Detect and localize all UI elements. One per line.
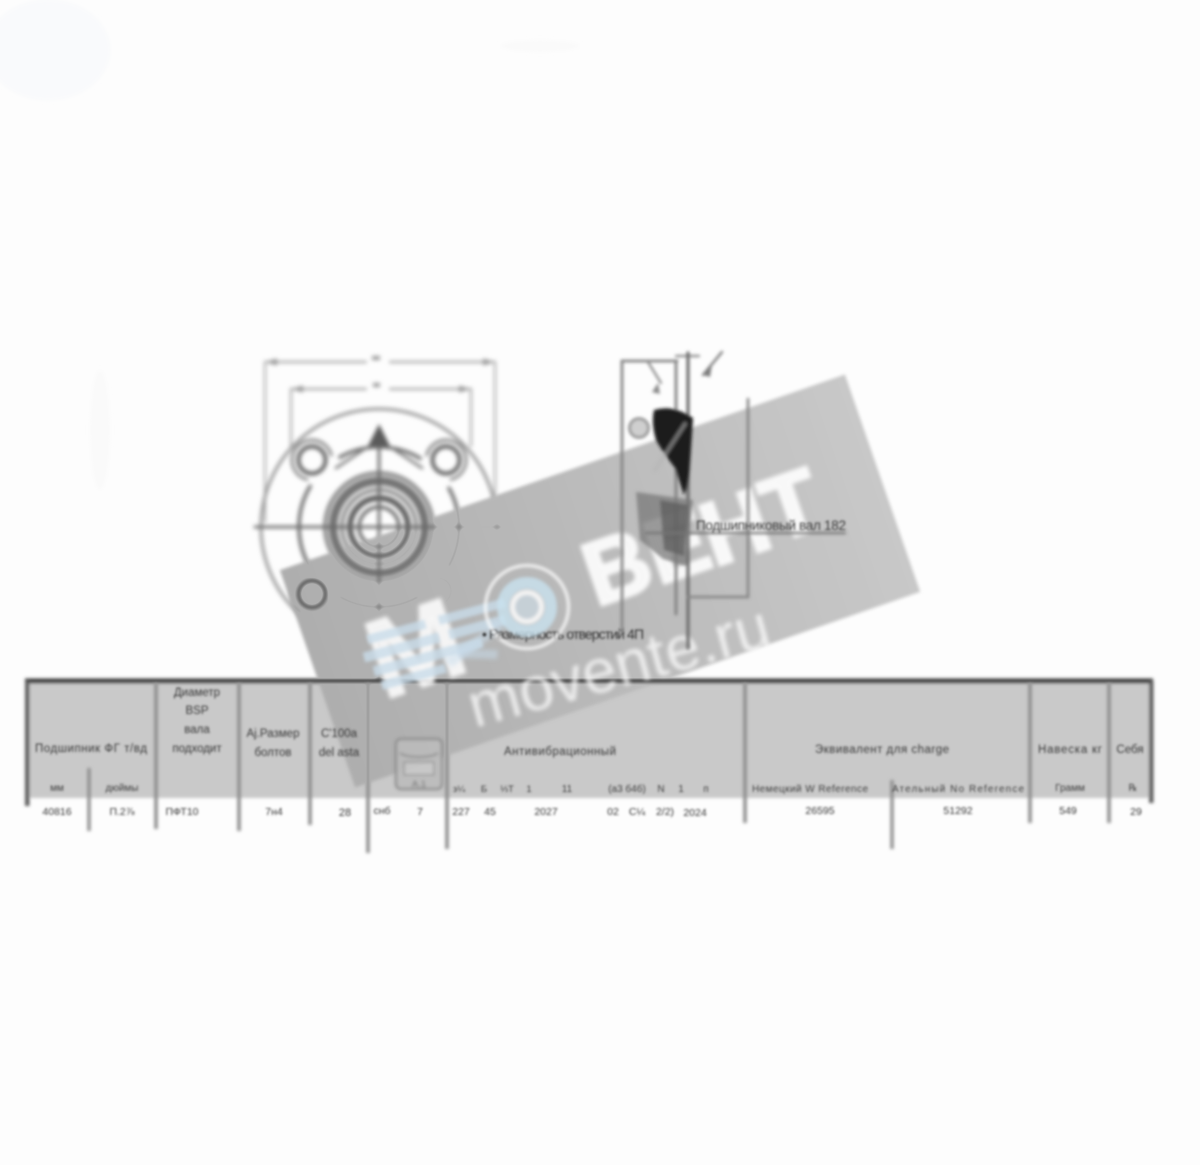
svg-text:51292: 51292 [943,805,972,817]
svg-text:Ательный No Reference: Ательный No Reference [892,784,1024,795]
svg-text:Б: Б [481,784,487,795]
svg-text:N: N [657,784,664,795]
svg-text:дюймы: дюймы [106,783,139,794]
svg-text:вала: вала [184,724,210,736]
svg-text:28: 28 [339,807,351,819]
svg-text:7: 7 [417,806,423,818]
svg-text:2027: 2027 [534,806,558,818]
svg-text:40816: 40816 [42,806,71,818]
svg-text:п: п [703,784,708,795]
svg-text:02: 02 [607,806,619,818]
svg-text:del asta: del asta [319,747,360,759]
svg-text:11: 11 [562,784,573,795]
svg-text:Aj.Размер: Aj.Размер [247,728,300,740]
svg-text:7н4: 7н4 [265,806,283,818]
svg-text:С¼: С¼ [629,806,646,818]
svg-text:Антивибрационный: Антивибрационный [504,746,616,758]
svg-text:снб: снб [373,805,390,817]
svg-text:Эквивалент для charge: Эквивалент для charge [815,744,949,756]
svg-text:29: 29 [1130,806,1142,818]
svg-text:2024: 2024 [683,807,707,819]
svg-text:26595: 26595 [805,805,834,817]
svg-text:мм: мм [50,783,64,794]
svg-text:Себя: Себя [1116,744,1143,756]
svg-text:Навеска кг: Навеска кг [1038,744,1102,756]
svg-text:А.1: А.1 [412,779,426,790]
svg-text:з¼: з¼ [453,784,466,795]
svg-text:℞: ℞ [1129,783,1138,794]
svg-text:Немецкий W Reference: Немецкий W Reference [752,784,868,795]
svg-text:549: 549 [1059,805,1077,817]
svg-text:Подшипниковый вал 182: Подшипниковый вал 182 [696,518,846,533]
svg-text:227: 227 [452,806,470,818]
svg-text:45: 45 [484,806,496,818]
svg-text:болтов: болтов [254,747,291,759]
svg-text:BSP: BSP [185,705,208,717]
svg-text:П.2⅞: П.2⅞ [109,806,134,818]
svg-text:С'100а: С'100а [321,728,358,740]
svg-text:Диаметр: Диаметр [174,687,220,699]
svg-text:1: 1 [526,784,531,795]
svg-text:ПФТ10: ПФТ10 [165,806,198,818]
svg-text:1: 1 [678,784,684,795]
svg-text:Подшипник ФГ т/вд: Подшипник ФГ т/вд [35,743,147,755]
svg-text:подходит: подходит [172,743,222,755]
svg-text:(а3 б4б): (а3 б4б) [608,783,646,795]
svg-text:⅓Т: ⅓Т [500,784,514,795]
svg-text:2/2): 2/2) [656,806,674,818]
svg-text:Грамм: Грамм [1055,783,1085,794]
